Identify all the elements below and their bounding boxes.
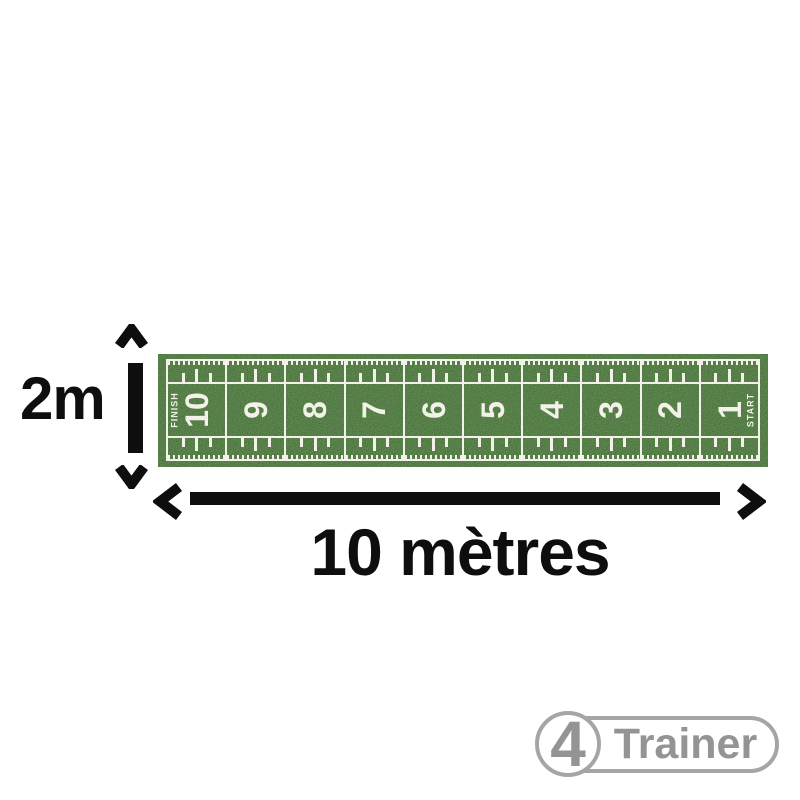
- mat-cell-6: 6: [403, 361, 462, 459]
- width-dimension-label: 10 mètres: [150, 519, 770, 585]
- ruler-ticks-top: [405, 361, 462, 384]
- mat-cell-number-area: 7: [346, 384, 403, 436]
- mat-cell-8: 8: [284, 361, 343, 459]
- height-dimension-bar: [128, 363, 143, 453]
- arrow-up-icon: [115, 324, 148, 348]
- sprint-track-mat: 10FINISH987654321START: [158, 354, 768, 467]
- mat-cell-number-area: 5: [464, 384, 521, 436]
- mat-cell-number: 3: [595, 401, 627, 419]
- logo-brand-text: Trainer: [614, 723, 757, 766]
- ruler-ticks-top: [227, 361, 284, 384]
- mat-cell-7: 7: [344, 361, 403, 459]
- mat-cell-2: 2: [640, 361, 699, 459]
- mat-cell-1: 1START: [699, 361, 758, 459]
- mat-cell-3: 3: [580, 361, 639, 459]
- mat-cell-number-area: 2: [642, 384, 699, 436]
- ruler-ticks-bottom: [405, 436, 462, 459]
- mat-cell-number-area: 9: [227, 384, 284, 436]
- ruler-ticks-top: [642, 361, 699, 384]
- mat-cell-number: 9: [240, 401, 272, 419]
- ruler-ticks-top: [464, 361, 521, 384]
- arrow-down-icon: [115, 465, 148, 489]
- mat-cell-number: 5: [477, 401, 509, 419]
- width-dimension-bar: [190, 492, 720, 505]
- mat-grid: 10FINISH987654321START: [166, 359, 760, 461]
- mat-cell-number: 10: [181, 392, 213, 428]
- mat-cell-5: 5: [462, 361, 521, 459]
- mat-start-label: START: [747, 375, 756, 445]
- mat-cell-number: 2: [654, 401, 686, 419]
- ruler-ticks-bottom: [168, 436, 225, 459]
- mat-cell-number-area: 8: [286, 384, 343, 436]
- brand-logo: Trainer 4: [535, 711, 780, 777]
- mat-cell-number-area: 1START: [701, 384, 758, 436]
- mat-cell-9: 9: [225, 361, 284, 459]
- mat-cell-number-area: 6: [405, 384, 462, 436]
- mat-cell-10: 10FINISH: [168, 361, 225, 459]
- mat-cell-4: 4: [521, 361, 580, 459]
- mat-cell-number-area: 10FINISH: [168, 384, 225, 436]
- mat-cell-number: 1: [713, 401, 745, 419]
- ruler-ticks-top: [523, 361, 580, 384]
- ruler-ticks-bottom: [701, 436, 758, 459]
- ruler-ticks-bottom: [464, 436, 521, 459]
- height-dimension-label: 2m: [20, 369, 105, 429]
- product-dimension-diagram: 2m 10FINISH987654321START 10 mètres Trai…: [0, 0, 800, 800]
- ruler-ticks-bottom: [523, 436, 580, 459]
- ruler-ticks-bottom: [346, 436, 403, 459]
- ruler-ticks-bottom: [286, 436, 343, 459]
- mat-cell-number-area: 3: [582, 384, 639, 436]
- mat-cell-number: 6: [417, 401, 449, 419]
- mat-cell-number: 7: [358, 401, 390, 419]
- ruler-ticks-top: [286, 361, 343, 384]
- mat-cell-number: 8: [299, 401, 331, 419]
- ruler-ticks-top: [582, 361, 639, 384]
- logo-circle-badge: 4: [535, 711, 601, 777]
- mat-cell-number-area: 4: [523, 384, 580, 436]
- ruler-ticks-bottom: [227, 436, 284, 459]
- arrow-right-icon: [736, 483, 766, 520]
- mat-cell-number: 4: [536, 401, 568, 419]
- ruler-ticks-bottom: [642, 436, 699, 459]
- mat-finish-label: FINISH: [171, 375, 180, 445]
- ruler-ticks-bottom: [582, 436, 639, 459]
- logo-badge-digit: 4: [550, 714, 586, 774]
- arrow-left-icon: [153, 483, 183, 520]
- ruler-ticks-top: [346, 361, 403, 384]
